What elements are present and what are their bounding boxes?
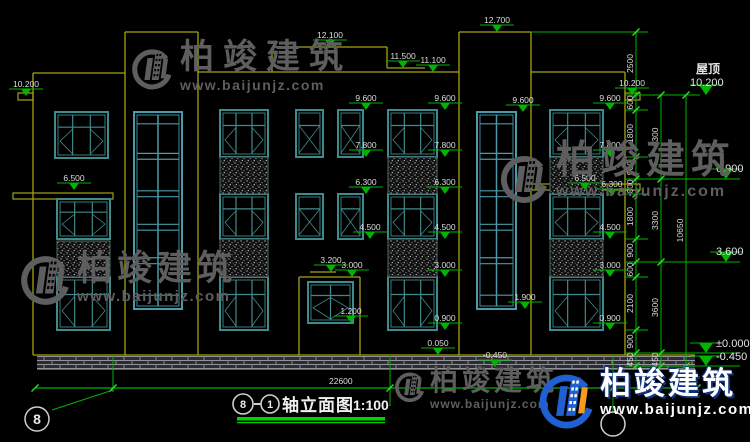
window [477,112,516,309]
elevation-marker: 3.600 [710,246,744,262]
dim-label: 3300 [650,211,660,230]
elevation-value: ±0.000 [716,338,750,350]
elevation-value: 1.900 [514,292,536,302]
elevation-value: 11.100 [420,55,446,65]
elevation-value: 6.300 [434,177,456,187]
elevation-value: 9.600 [434,93,456,103]
elevation-value: 10.200 [690,77,724,89]
elevation-value: 7.800 [599,140,621,150]
grid-bubble-label: 8 [33,411,41,427]
dim-label: 900 [625,334,635,348]
elevation-marker: 11.500 [386,51,420,68]
grid-leader [52,390,113,410]
elevation-value: 6.500 [63,173,85,183]
roof-label: 屋顶 [696,62,720,76]
elevation-marker: 12.100 [313,30,347,47]
cad-canvas: 2500600180090060018009006002100900450330… [0,0,750,442]
title-underline [237,417,385,421]
elevation-value: 6.500 [574,173,596,183]
elevation-value: 10.200 [13,79,39,89]
window [55,112,108,158]
plinth-layer [37,356,695,369]
dim-label: 600 [625,179,635,193]
window [220,110,268,157]
elevation-marker: 9.600 [428,93,462,110]
elevation-value: 4.500 [434,222,456,232]
axis-bubble-1-label: 1 [267,399,273,411]
elevation-value: 4.500 [359,222,381,232]
window [134,112,182,309]
elevation-value: 3.000 [434,260,456,270]
elevation-value: 3.200 [320,255,342,265]
dim-label: 3300 [650,127,660,146]
elevation-value: 0.900 [599,313,621,323]
elevation-marker: 6.300 [349,177,383,194]
elevation-marker: 0.050 [421,338,455,355]
elevation-marker: 0.900 [593,313,627,330]
window [220,277,268,330]
dim-label: 900 [625,243,635,257]
elevation-value: 0.050 [427,338,449,348]
hatch-panel [220,239,268,277]
dim-label: 10650 [675,218,685,242]
elevation-value: 10.200 [619,78,645,88]
elevation-marker: 6.500 [57,173,91,190]
dim-label: 1800 [625,207,635,226]
elevation-marker: 1.200 [334,306,368,323]
elevation-value: 9.600 [355,93,377,103]
window [296,110,323,157]
elevation-marker: 9.600 [593,93,627,110]
title-bar: 8 1 轴立面图 1:100 [233,394,389,415]
elevation-value: 6.300 [601,179,623,189]
hatch-panel [57,241,110,277]
dim-label: 1800 [625,124,635,143]
elevation-value: 6.300 [355,177,377,187]
elevation-value: -0.450 [716,351,747,363]
dim-label: 450 [650,352,660,366]
elevation-value: 9.600 [512,95,534,105]
elevation-marker: 6.900 [710,163,744,179]
dim-label: 600 [625,95,635,109]
elevation-value: 9.600 [599,93,621,103]
elevation-value: 4.500 [599,222,621,232]
hatch-panel [388,157,437,194]
window [308,282,353,323]
elevation-value: 12.700 [484,15,510,25]
elevation-marker: 9.600 [506,95,540,112]
elevation-value: 6.900 [716,163,744,175]
elevation-value: 7.800 [355,140,377,150]
elevation-value: 7.800 [434,140,456,150]
dim-label: 2500 [625,54,635,73]
dim-label: 450 [625,352,635,366]
brick-plinth [37,356,695,369]
elevation-value: 0.900 [434,313,456,323]
elevation-value: 12.100 [317,30,343,40]
elevation-value: 11.500 [390,51,416,61]
drawing-scale: 1:100 [353,397,389,413]
elevation-marker: 11.100 [416,55,450,72]
elevation-marker: 10.200 [690,77,724,95]
dim-label: 2100 [625,294,635,313]
overall-width-label: 22600 [329,376,353,386]
elevation-marker: 10.200 [9,79,43,96]
elevation-marker: 9.600 [349,93,383,110]
dim-label: 600 [625,262,635,276]
hatch-panel [388,239,437,277]
window [388,277,437,330]
window [57,199,110,239]
window [296,194,323,239]
hatch-panel [550,239,603,277]
grid-bubble [601,412,625,436]
elevation-marker: 12.700 [480,15,514,32]
dim-label: 3600 [650,298,660,317]
elevation-drawing: 2500600180090060018009006002100900450330… [0,0,750,442]
elevation-value: 3.600 [716,246,744,258]
title-underline [237,422,385,423]
window [550,277,603,330]
elevation-marker: 0.900 [428,313,462,330]
drawing-title: 轴立面图 [282,395,354,415]
elevation-value: 3.000 [341,260,363,270]
elevation-value: -0.450 [483,350,507,360]
dim-label: 900 [625,161,635,175]
window [57,277,110,330]
window [220,194,268,239]
hatch-panel [220,157,268,194]
axis-bubble-8-label: 8 [240,399,246,411]
elevation-value: 1.200 [340,306,362,316]
elevation-value: 3.000 [599,260,621,270]
